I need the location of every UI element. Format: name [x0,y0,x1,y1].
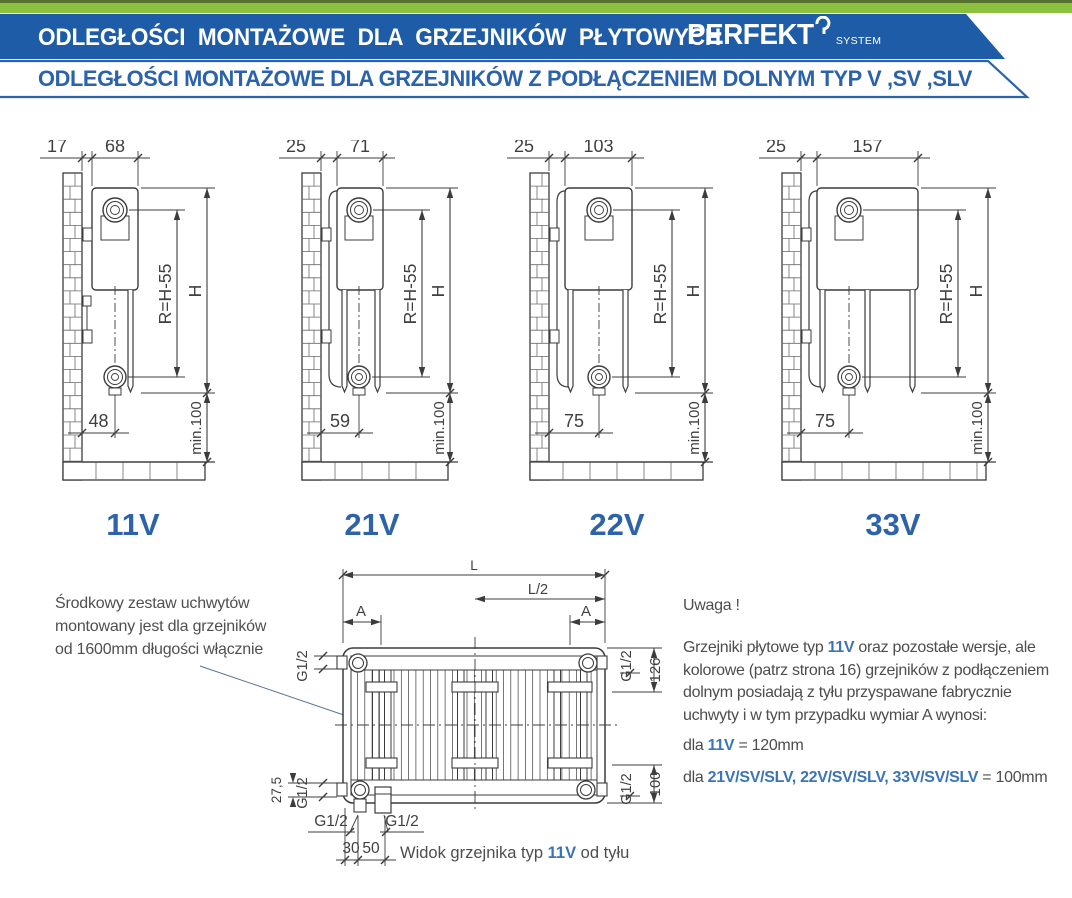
subtitle: ODLEGŁOŚCI MONTAŻOWE DLA GRZEJNIKÓW Z PO… [38,66,972,92]
warning-text: oraz pozostałe wersje, ale [854,639,1035,656]
dim-label: min.100 [188,401,205,454]
green-strip-edge [0,0,1072,3]
dim-label: 25 [766,140,786,156]
dim-label: H [966,285,986,298]
dim-label: L [470,558,478,573]
warning-note: Uwaga ! Grzejniki płytowe typ 11V oraz p… [683,597,1049,791]
dim-label: G1/2 [295,777,311,808]
type-label-22v: 22V [537,507,697,543]
dim-label: 103 [583,140,613,156]
dim-label: G1/2 [619,650,635,681]
brand-logo-curl-icon [815,16,831,41]
left-note-line: montowany jest dla grzejników [55,615,266,638]
dim-label: H [683,285,703,298]
page: ODLEGŁOŚCI MONTAŻOWE DLA GRZEJNIKÓW PŁYT… [0,0,1072,898]
left-note-line: Środkowy zestaw uchwytów [55,592,266,615]
dim-label: 71 [350,140,370,156]
type-label-21v: 21V [292,507,452,543]
dim-label: 27,5 [269,777,284,803]
dim-label: 100 [647,771,664,796]
warning-text: = 100mm [978,769,1047,786]
type-label-11v: 11V [53,507,213,543]
dimension-a-rule-11v: dla 11V = 120mm [683,733,1049,759]
warning-paragraph: Grzejniki płytowe typ 11V oraz pozostałe… [683,637,1049,727]
dim-label: R=H-55 [155,264,175,325]
warning-text: dla [683,737,708,754]
brand-logo: PERFEKT SYSTEM [687,19,881,52]
dim-label: min.100 [969,401,986,454]
left-note-line: od 1600mm długości włącznie [55,638,266,661]
wall-diagrams: 1768R=H-55Hmin.100482571R=H-55Hmin.10059… [0,140,1072,505]
diagram-22V: 25103R=H-55Hmin.10075 [507,140,713,480]
warning-text: dla [683,769,708,786]
warning-type-highlight: 11V [708,737,735,754]
diagram-21V: 2571R=H-55Hmin.10059 [279,140,458,480]
warning-text: Grzejniki płytowe typ [683,639,828,656]
dim-label: R=H-55 [650,264,670,325]
warning-text: uchwyty i w tym przypadku wymiar A wynos… [683,707,987,724]
warning-text: dolnym posiadają z tyłu przyspawane fabr… [683,684,1012,701]
dim-label: H [185,285,205,298]
warning-type-highlight: 21V/SV/SLV, 22V/SV/SLV, 33V/SV/SLV [708,769,979,786]
dim-label: R=H-55 [400,264,420,325]
dim-label: 75 [564,411,584,431]
dim-label: 17 [47,140,67,156]
rear-view-caption: Widok grzejnika typ 11V od tyłu [400,844,629,862]
warning-title: Uwaga ! [683,597,1049,615]
dim-label: min.100 [431,401,448,454]
dim-label: H [428,285,448,298]
brand-logo-subtext: SYSTEM [836,35,882,47]
dim-label: 50 [362,840,380,857]
dim-label: G1/2 [385,813,419,830]
dim-label: min.100 [686,401,703,454]
brand-logo-text: PERFEKT [687,19,814,52]
dim-label: 126 [647,657,664,682]
warning-type-highlight: 11V [828,639,855,656]
dim-label: R=H-55 [936,264,956,325]
dim-label: A [581,603,591,620]
warning-text: kolorowe (patrz strona 16) grzejników z … [683,662,1049,679]
dim-label: 157 [852,140,882,156]
type-label-33v: 33V [813,507,973,543]
dim-label: 75 [815,411,835,431]
dim-label: G1/2 [314,813,348,830]
dim-label: 30 [342,840,360,857]
dim-label: G1/2 [619,773,635,804]
dim-label: 59 [330,411,350,431]
warning-text: = 120mm [734,737,803,754]
dim-label: 25 [286,140,306,156]
dim-label: 25 [514,140,534,156]
diagram-33V: 25157R=H-55Hmin.10075 [759,140,996,480]
dimension-a-rule-other: dla 21V/SV/SLV, 22V/SV/SLV, 33V/SV/SLV =… [683,765,1049,791]
left-note: Środkowy zestaw uchwytów montowany jest … [55,592,266,661]
dim-label: 68 [105,140,125,156]
rear-view: LL/2AA126G1/2100G1/2G1/2G1/227,53050G1/2… [200,558,664,866]
diagram-11V: 1768R=H-55Hmin.10048 [40,140,215,480]
dim-label: A [356,603,366,620]
dim-label: L/2 [528,582,548,598]
page-title: ODLEGŁOŚCI MONTAŻOWE DLA GRZEJNIKÓW PŁYT… [38,24,721,52]
dim-label: G1/2 [295,650,311,681]
dim-label: 48 [88,411,108,431]
